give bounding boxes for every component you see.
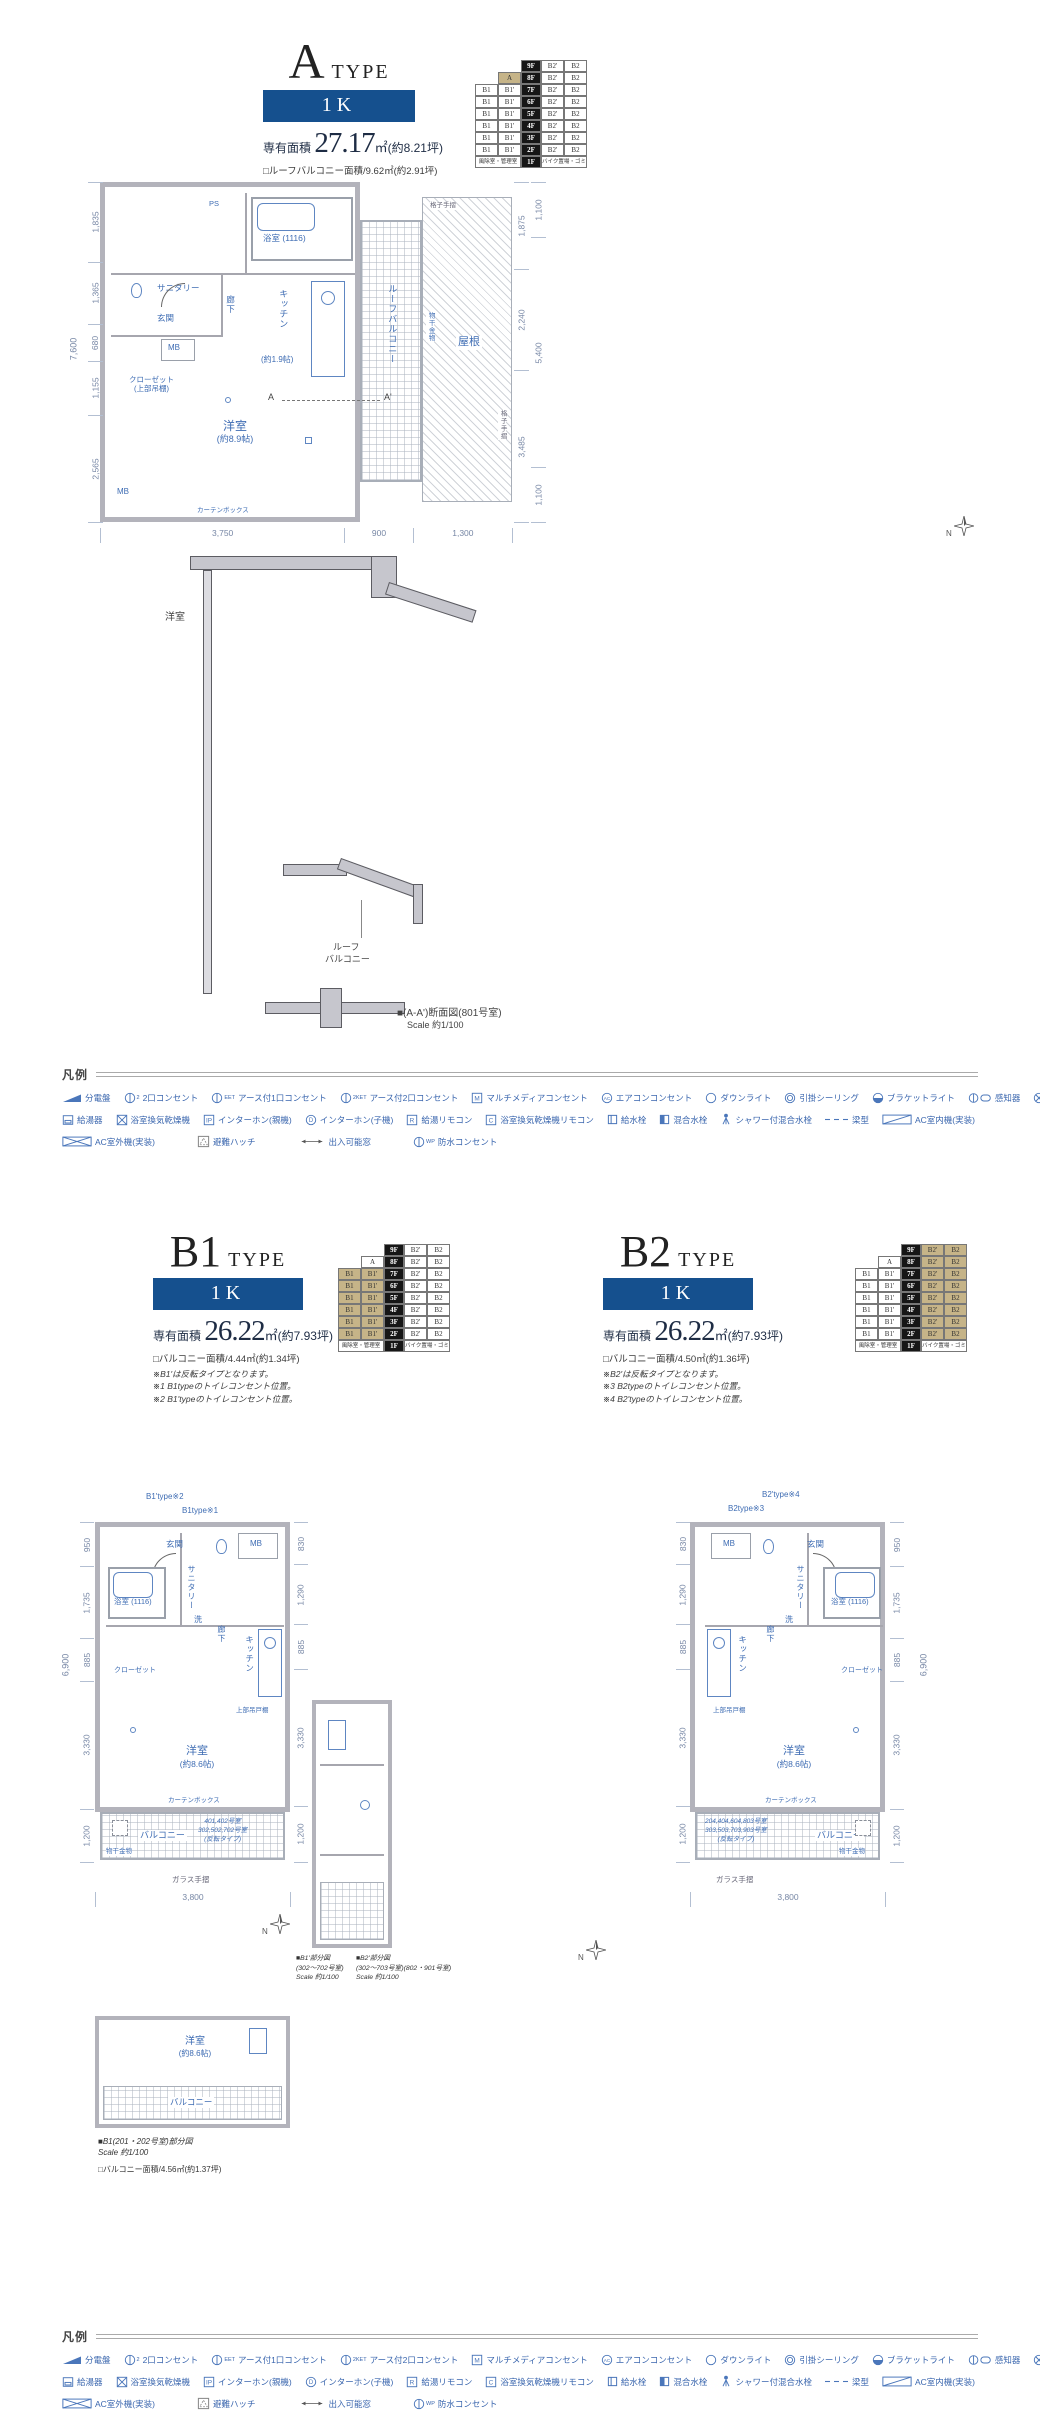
compass-icon xyxy=(954,516,974,536)
dim-chain-a-bottom: 3,7509001,300 xyxy=(100,528,513,543)
partial-balcony-hatch xyxy=(320,1882,384,1940)
legend-item: 分電盤 xyxy=(62,2354,111,2366)
legend-item: Mマルチメディアコンセント xyxy=(471,1092,587,1104)
stack-row: B1B1'4FB2'B2 xyxy=(855,1304,967,1316)
legend-label: アース付1口コンセント xyxy=(238,1092,327,1104)
stack-cell: 8F xyxy=(521,72,541,84)
legend-icon-sup: WP xyxy=(426,2401,435,2407)
floor-plan-b1: MB 玄関 浴室 (1116) サニタリー 洗 廊下 キッチン 上部吊戸棚 クロ… xyxy=(95,1522,290,1812)
room-label-ps: PS xyxy=(209,199,219,208)
roof-label: 屋根 xyxy=(456,336,482,350)
stack-cell: バイク置場・ゴミ置場 xyxy=(541,156,587,168)
footnote: ※1 B1typeのトイレコンセント位置。 xyxy=(153,1380,303,1392)
legend-item: AC室外機(実装) xyxy=(62,1135,155,1148)
section-scale: Scale 約1/100 xyxy=(407,1018,464,1031)
legend-item: 感知器 xyxy=(968,2354,1021,2366)
legend-row: 給湯器浴室換気乾燥機IPインターホン(親機)Dインターホン(子機)R給湯リモコン… xyxy=(62,2375,978,2388)
legend-label: 出入可能窓 xyxy=(329,1136,372,1148)
stack-row: B1B1'6FB2'B2 xyxy=(475,96,587,108)
stack-cell: B1' xyxy=(361,1268,384,1280)
beam-icon xyxy=(825,2378,849,2385)
stack-cell: B2' xyxy=(541,132,564,144)
unit-number-note: 302,502,702号室 xyxy=(198,1827,247,1836)
legend-item: AC室内機(実装) xyxy=(882,2375,975,2388)
stack-row: A8FB2'B2 xyxy=(475,72,587,84)
western-size-label: (約8.6帖) xyxy=(142,1759,252,1770)
legend-label: AC室内機(実装) xyxy=(915,2376,975,2388)
curtain-box-label: カーテンボックス xyxy=(168,1797,220,1805)
legend-item: Dインターホン(子機) xyxy=(305,2376,394,2388)
legend-row: 給湯器浴室換気乾燥機IPインターホン(親機)Dインターホン(子機)R給湯リモコン… xyxy=(62,1113,978,1126)
footnote: ※4 B2'typeのトイレコンセント位置。 xyxy=(603,1393,753,1405)
legend-label: 引掛シーリング xyxy=(799,2354,859,2366)
b1-balcony-area: バルコニー 401,402号室302,502,702号室(反転タイプ) 物干金物 xyxy=(100,1812,285,1860)
stack-spacer xyxy=(855,1244,901,1256)
legend-label: インターホン(親機) xyxy=(218,2376,292,2388)
stack-cell: B1 xyxy=(475,84,498,96)
legend-label: アース付2口コンセント xyxy=(370,1092,459,1104)
area-tsubo: (約8.21坪) xyxy=(388,141,443,155)
bath-label: 浴室 xyxy=(831,1597,846,1606)
stack-row: B1B1'6FB2'B2 xyxy=(338,1280,450,1292)
wall-partition xyxy=(111,273,355,275)
stack-cell: 6F xyxy=(384,1280,404,1292)
dim-chain-a-right-inner: 1,8752,2403,485 xyxy=(514,182,529,523)
stack-cell: B1' xyxy=(878,1280,901,1292)
type-b2-suffix: TYPE xyxy=(678,1250,736,1270)
legend-label: 避難ハッチ xyxy=(213,1136,256,1148)
dim-chain-b1-right: 8301,2908853,3301,200 xyxy=(294,1522,308,1863)
stack-cell: 6F xyxy=(521,96,541,108)
room-label-wash: 洗 xyxy=(194,1615,202,1625)
legend-label: エアコンコンセント xyxy=(616,2354,693,2366)
dim-label: 1,100 xyxy=(531,467,546,522)
section-wall xyxy=(203,570,212,994)
stack-cell: B2' xyxy=(921,1280,944,1292)
hanging-cupboard-label: 上部吊戸棚 xyxy=(713,1707,746,1715)
hotwater-remote-icon: R xyxy=(406,2376,418,2388)
legend-row: 分電盤22口コンセントEETアース付1口コンセント2KETアース付2口コンセント… xyxy=(62,2354,978,2366)
dim-chain-b1-left: 9501,7358853,3301,200 xyxy=(80,1522,94,1863)
stack-cell: B1 xyxy=(338,1280,361,1292)
dim-label: 1,200 xyxy=(80,1809,94,1862)
unit-number-note: 303,503,703,903号室 xyxy=(705,1827,767,1836)
section-cut-line xyxy=(282,400,380,401)
stack-cell: B1 xyxy=(338,1328,361,1340)
stack-row: 9FB2'B2 xyxy=(338,1244,450,1256)
stack-cell: B1' xyxy=(498,96,521,108)
stack-cell: B2 xyxy=(944,1292,967,1304)
bracket-light-icon xyxy=(872,2354,884,2366)
caption-line: (302〜702号室) xyxy=(296,1964,344,1974)
bathtub-icon xyxy=(835,1572,875,1598)
legend-icon-sup: EET xyxy=(224,2357,235,2363)
partial-caption-b1-201: ■B1(201・202号室)部分図Scale 約1/100 xyxy=(98,2136,193,2158)
stack-cell: B2 xyxy=(944,1328,967,1340)
legend-item: ダウンライト xyxy=(705,2354,771,2366)
closet-label: クローゼット xyxy=(129,375,174,384)
stack-cell: B1 xyxy=(338,1304,361,1316)
compass-north-label: N xyxy=(946,529,952,538)
stack-cell: B2 xyxy=(427,1244,450,1256)
partial-plan-strip xyxy=(312,1700,392,1948)
legend-header: 凡例 xyxy=(62,2328,978,2345)
type-b1-header: B1 TYPE 1K 専有面積 26.22㎡(約7.93坪) □バルコニー面積/… xyxy=(153,1230,303,1405)
dim-label: 1,155 xyxy=(88,361,103,415)
stack-row: B1B1'7FB2'B2 xyxy=(475,84,587,96)
stack-cell: B1' xyxy=(498,132,521,144)
room-label-kitchen: キッチン xyxy=(737,1635,748,1673)
stack-cell: B1' xyxy=(498,144,521,156)
shower-mixer-tap-icon xyxy=(720,1113,732,1126)
outlet-1-earth-icon xyxy=(211,1092,223,1104)
stack-row: A8FB2'B2 xyxy=(855,1256,967,1268)
dim-label: 2,565 xyxy=(88,415,103,522)
legend-label: 防水コンセント xyxy=(438,2398,498,2410)
fixture-icon xyxy=(249,2028,267,2054)
footnote: ※B1'は反転タイプとなります。 xyxy=(153,1368,303,1380)
dim-label: 950 xyxy=(890,1522,904,1566)
stack-cell: B1' xyxy=(878,1292,901,1304)
dim-label: 1,100 xyxy=(531,182,546,237)
legend-label: 引掛シーリング xyxy=(799,1092,859,1104)
stack-row: B1B1'3FB2'B2 xyxy=(338,1316,450,1328)
b1-type-annotation: B1type※1 xyxy=(182,1506,218,1515)
type-a-plan-band: 1K xyxy=(263,90,415,122)
western-label: 洋室 xyxy=(739,1745,849,1759)
type-b2-notes: ※B2'は反転タイプとなります。※3 B2typeのトイレコンセント位置。※4 … xyxy=(603,1368,753,1405)
ac-outdoor-unit-icon xyxy=(62,1135,92,1148)
stack-cell: 1F xyxy=(521,156,541,168)
stack-row: B1B1'4FB2'B2 xyxy=(338,1304,450,1316)
legend-item: 2KETアース付2口コンセント xyxy=(340,1092,459,1104)
legend-icon-sup: 2 xyxy=(137,2357,140,2363)
legend-item: 浴室換気乾燥機 xyxy=(116,2376,191,2388)
stack-cell: B1' xyxy=(498,120,521,132)
type-b1-title: B1 TYPE xyxy=(153,1230,303,1274)
western-size-label: (約8.6帖) xyxy=(739,1759,849,1770)
legend-label: 給水栓 xyxy=(621,2376,647,2388)
b1-unit-note: 401,402号室302,502,702号室(反転タイプ) xyxy=(198,1818,247,1844)
legend-label: 浴室換気乾燥機リモコン xyxy=(500,2376,594,2388)
room-label-western: 洋室 (約8.6帖) xyxy=(739,1745,849,1769)
type-b2-letter: B2 xyxy=(620,1230,671,1274)
roof-area: 屋根 xyxy=(422,197,512,502)
dim-label: 1,365 xyxy=(88,262,103,324)
stack-row: B1B1'4FB2'B2 xyxy=(475,120,587,132)
outlet-icon xyxy=(853,1727,859,1733)
legend-label: 分電盤 xyxy=(85,1092,111,1104)
legend-label: インターホン(子機) xyxy=(320,1114,394,1126)
dim-chain-b2-right: 9501,7358853,3301,200 xyxy=(890,1522,904,1863)
room-label-western: 洋室 (約8.6帖) xyxy=(142,1745,252,1769)
dim-label: 1,200 xyxy=(676,1806,690,1862)
unit-number-note: (反転タイプ) xyxy=(198,1836,247,1845)
legend-row: AC室外機(実装)避難ハッチ出入可能窓WP防水コンセント xyxy=(62,1135,978,1148)
monohoshi-label: 物干金物 xyxy=(426,312,434,342)
stack-cell: B2' xyxy=(921,1328,944,1340)
dim-total-b1: 6,900 xyxy=(60,1654,70,1677)
dim-label: 1,200 xyxy=(294,1806,308,1862)
wall-partition xyxy=(320,1764,384,1766)
legend-label: 2口コンセント xyxy=(143,2354,199,2366)
stack-cell: 9F xyxy=(521,60,541,72)
stack-cell: B2' xyxy=(404,1256,427,1268)
stack-cell: B2' xyxy=(404,1304,427,1316)
svg-text:M: M xyxy=(475,2358,480,2365)
stack-row: B1B1'5FB2'B2 xyxy=(338,1292,450,1304)
stack-cell: バイク置場・ゴミ置場 xyxy=(921,1340,967,1352)
stack-row: B1B1'7FB2'B2 xyxy=(338,1268,450,1280)
stack-cell: B1 xyxy=(475,144,498,156)
room-label-entrance: 玄関 xyxy=(157,313,174,324)
stack-cell: 風除室・管理室 xyxy=(855,1340,901,1352)
legend-label: AC室内機(実装) xyxy=(915,1114,975,1126)
dim-label: 3,330 xyxy=(80,1681,94,1809)
legend-icon-sup: WP xyxy=(426,1139,435,1145)
legend-rule xyxy=(96,1072,978,1077)
stack-cell: B1 xyxy=(338,1292,361,1304)
type-a-balcony-note: □ルーフバルコニー面積/9.62㎡(約2.91坪) xyxy=(263,163,415,177)
stack-cell: A xyxy=(878,1256,901,1268)
stack-cell: B1' xyxy=(361,1280,384,1292)
legend-label: マルチメディアコンセント xyxy=(486,1092,587,1104)
dim-chain-b2-left: 8301,2908853,3301,200 xyxy=(676,1522,690,1863)
legend-label: エアコンコンセント xyxy=(616,1092,693,1104)
stack-cell: B1' xyxy=(878,1328,901,1340)
stack-cell: 5F xyxy=(384,1292,404,1304)
legend-item: 梁型 xyxy=(825,2376,869,2388)
legend-item: 分電盤 xyxy=(62,1092,111,1104)
stack-cell: B2 xyxy=(944,1244,967,1256)
room-label-bath: 浴室 (1116) xyxy=(263,233,306,244)
legend-item: EETアース付1口コンセント xyxy=(211,1092,327,1104)
legend-label: 分電盤 xyxy=(85,2354,111,2366)
stack-cell: 7F xyxy=(901,1268,921,1280)
room-label-hall: 廊下 xyxy=(765,1625,775,1643)
dim-label: 830 xyxy=(294,1522,308,1564)
stack-cell: B2 xyxy=(944,1316,967,1328)
stack-row: B1B1'6FB2'B2 xyxy=(855,1280,967,1292)
svg-text:IP: IP xyxy=(206,1117,212,1124)
stack-cell: 3F xyxy=(521,132,541,144)
legend-item: 浴室換気乾燥機 xyxy=(116,1114,191,1126)
legend-item: 感知器 xyxy=(968,1092,1021,1104)
sink-icon xyxy=(713,1637,725,1649)
area-label: 専有面積 xyxy=(603,1329,651,1343)
compass-north-label: N xyxy=(578,1953,584,1962)
stack-cell: B2' xyxy=(921,1244,944,1256)
stack-cell: B1 xyxy=(855,1316,878,1328)
stack-cell: B2 xyxy=(944,1268,967,1280)
section-leader-line xyxy=(361,900,362,938)
stack-row: 風除室・管理室1Fバイク置場・ゴミ置場 xyxy=(475,156,587,168)
dim-label: 830 xyxy=(676,1522,690,1564)
room-label-kitchen: キッチン xyxy=(244,1635,255,1673)
stack-spacer xyxy=(855,1256,878,1268)
stack-cell: B1 xyxy=(855,1304,878,1316)
unit-number-note: (反転タイプ) xyxy=(705,1836,767,1845)
outlet-icon xyxy=(305,437,312,444)
dim-label: 1,300 xyxy=(413,528,512,543)
caption-line: ■B2'部分図 xyxy=(356,1954,451,1964)
stack-cell: 3F xyxy=(901,1316,921,1328)
stack-row: B1B1'2FB2'B2 xyxy=(338,1328,450,1340)
stack-cell: B1 xyxy=(475,132,498,144)
dim-label: 885 xyxy=(890,1638,904,1680)
bath-label: 浴室 xyxy=(263,233,280,243)
stack-cell: 7F xyxy=(521,84,541,96)
stack-cell: 2F xyxy=(384,1328,404,1340)
stack-cell: B2' xyxy=(541,144,564,156)
svg-text:D: D xyxy=(309,2380,314,2386)
legend-label: 給湯リモコン xyxy=(421,1114,472,1126)
b2-unit-note: 204,404,604,803号室303,503,703,903号室(反転タイプ… xyxy=(705,1818,767,1844)
unit-number-note: 401,402号室 xyxy=(198,1818,247,1827)
legend-item: 避難ハッチ xyxy=(197,2397,256,2410)
legend-item: 梁型 xyxy=(825,1114,869,1126)
aircon-outlet-icon: AC xyxy=(601,2354,613,2366)
dim-label: 950 xyxy=(80,1522,94,1566)
legend-label: 出入可能窓 xyxy=(329,2398,372,2410)
bathtub-icon xyxy=(113,1572,153,1598)
legend-label: 給湯器 xyxy=(77,2376,103,2388)
type-a-letter: A xyxy=(288,36,324,86)
legend-item: 混合水栓 xyxy=(659,2376,707,2388)
legend-item: Mマルチメディアコンセント xyxy=(471,2354,587,2366)
section-roof-slab xyxy=(190,556,395,570)
downlight-icon xyxy=(705,1092,717,1104)
type-b2-header: B2 TYPE 1K 専有面積 26.22㎡(約7.93坪) □バルコニー面積/… xyxy=(603,1230,753,1405)
type-a-floor-stack: 9FB2'B2A8FB2'B2B1B1'7FB2'B2B1B1'6FB2'B2B… xyxy=(475,60,587,168)
stack-cell: 6F xyxy=(901,1280,921,1292)
legend-item: ブラケットライト xyxy=(872,2354,955,2366)
area-unit: ㎡ xyxy=(715,1328,728,1343)
legend-item: 出入可能窓 xyxy=(298,1136,372,1148)
plan-a-unit-outline: 浴室 (1116) PS サニタリー 玄関 廊下 MB クローゼット (上部吊棚… xyxy=(100,182,360,522)
intercom-sub-icon: D xyxy=(305,2376,317,2388)
svg-text:AC: AC xyxy=(604,2358,611,2363)
room-label-mb: MB xyxy=(168,343,180,353)
legend-item: 避難ハッチ xyxy=(197,1135,256,1148)
bath-dryer-icon xyxy=(116,1114,128,1126)
dim-label: 3,330 xyxy=(676,1669,690,1806)
escape-hatch-icon xyxy=(855,1820,871,1836)
legend-item: WP防水コンセント xyxy=(413,1136,497,1148)
stack-cell: B1 xyxy=(338,1316,361,1328)
type-b2-balcony-note: □バルコニー面積/4.50㎡(約1.36坪) xyxy=(603,1351,753,1365)
stack-row: 風除室・管理室1Fバイク置場・ゴミ置場 xyxy=(338,1340,450,1352)
stack-row: 9FB2'B2 xyxy=(475,60,587,72)
stack-cell: B2' xyxy=(541,72,564,84)
stack-cell: B2 xyxy=(564,132,587,144)
partial-plan-b1-201: 洋室 (約8.6帖) バルコニー xyxy=(95,2016,290,2128)
compass-icon xyxy=(270,1914,290,1934)
stack-cell: 8F xyxy=(901,1256,921,1268)
sink-icon xyxy=(264,1637,276,1649)
legend-item: R給湯リモコン xyxy=(406,1114,472,1126)
western-label: 洋室 xyxy=(142,1745,252,1759)
wall-partition xyxy=(320,1854,384,1856)
area-unit: ㎡ xyxy=(375,140,388,155)
water-tap-icon xyxy=(607,2376,618,2387)
accessible-window-icon xyxy=(298,1137,326,1146)
section-room-label: 洋室 xyxy=(165,608,185,623)
b2-prime-type-annotation: B2'type※4 xyxy=(762,1490,800,1499)
waterproof-outlet-icon xyxy=(413,2398,425,2410)
stack-cell: B2' xyxy=(921,1316,944,1328)
legend-item: ブラケットライト xyxy=(872,1092,955,1104)
dim-chain-a-right-outer: 1,1005,4001,100 xyxy=(531,182,546,523)
stack-cell: B2' xyxy=(404,1268,427,1280)
legend-rule xyxy=(96,2334,978,2339)
section-roof-slope xyxy=(385,582,477,623)
room-label-bath: 浴室 (1116) xyxy=(114,1597,152,1606)
outlet-1-earth-icon xyxy=(211,2354,223,2366)
stack-cell: B1' xyxy=(361,1328,384,1340)
legend-label: 浴室換気乾燥機 xyxy=(131,2376,191,2388)
stack-cell: 4F xyxy=(521,120,541,132)
stack-cell: A xyxy=(361,1256,384,1268)
room-label-closet: クローゼット xyxy=(841,1667,883,1676)
b1-prime-type-annotation: B1'type※2 xyxy=(146,1492,184,1501)
bathtub-icon xyxy=(257,203,315,231)
legend-item: 22口コンセント xyxy=(124,2354,199,2366)
room-label-kitchen: キッチン xyxy=(277,289,288,329)
legend-top: 凡例 分電盤22口コンセントEETアース付1口コンセント2KETアース付2口コン… xyxy=(62,1066,978,1148)
stack-cell: 4F xyxy=(901,1304,921,1316)
legend-label: 感知器 xyxy=(995,1092,1021,1104)
western-label: 洋室 xyxy=(145,2036,245,2049)
legend-item: 給湯器 xyxy=(62,1114,103,1126)
stack-cell: 8F xyxy=(384,1256,404,1268)
escape-hatch-icon xyxy=(197,2397,210,2410)
dim-label: 3,485 xyxy=(514,370,529,522)
legend-label: インターホン(子機) xyxy=(320,2376,394,2388)
escape-hatch-icon xyxy=(112,1820,128,1836)
room-label-sanitary: サニタリー xyxy=(795,1565,805,1610)
legend-item: シャワー付混合水栓 xyxy=(720,1113,812,1126)
stack-row: B1B1'2FB2'B2 xyxy=(475,144,587,156)
legend-item: C浴室換気乾燥機リモコン xyxy=(485,2376,594,2388)
legend-label: 給湯器 xyxy=(77,1114,103,1126)
floor-plan-b2: MB 玄関 浴室 (1116) サニタリー 洗 廊下 キッチン 上部吊戸棚 クロ… xyxy=(690,1522,885,1812)
room-label-bath: 浴室 (1116) xyxy=(831,1597,869,1606)
legend-item: ACエアコンコンセント xyxy=(601,2354,693,2366)
stack-cell: B2 xyxy=(564,96,587,108)
legend-title: 凡例 xyxy=(62,1066,88,1083)
dim-label: 1,290 xyxy=(676,1564,690,1624)
dim-chain-b1-bottom: 3,800 xyxy=(95,1892,291,1907)
section-marker-a: A xyxy=(268,392,274,403)
stack-cell: B2 xyxy=(944,1280,967,1292)
wall-partition xyxy=(705,1625,883,1627)
outlet-2-icon xyxy=(124,2354,136,2366)
waterproof-outlet-icon xyxy=(413,1136,425,1148)
dim-label: 3,330 xyxy=(294,1669,308,1806)
legend-label: 防水コンセント xyxy=(438,1136,498,1148)
intercom-sub-icon: D xyxy=(305,1114,317,1126)
stack-cell: B1 xyxy=(475,96,498,108)
section-mid-column xyxy=(413,884,423,924)
stack-cell: B1 xyxy=(855,1280,878,1292)
monohoshi-label: 物干金物 xyxy=(839,1848,865,1856)
dim-label: 900 xyxy=(344,528,412,543)
caption-line: ■B1(201・202号室)部分図 xyxy=(98,2136,193,2147)
fixture-icon xyxy=(328,1720,346,1750)
dim-label: 5,400 xyxy=(531,237,546,466)
hanging-cupboard-label: 上部吊戸棚 xyxy=(236,1707,269,1715)
